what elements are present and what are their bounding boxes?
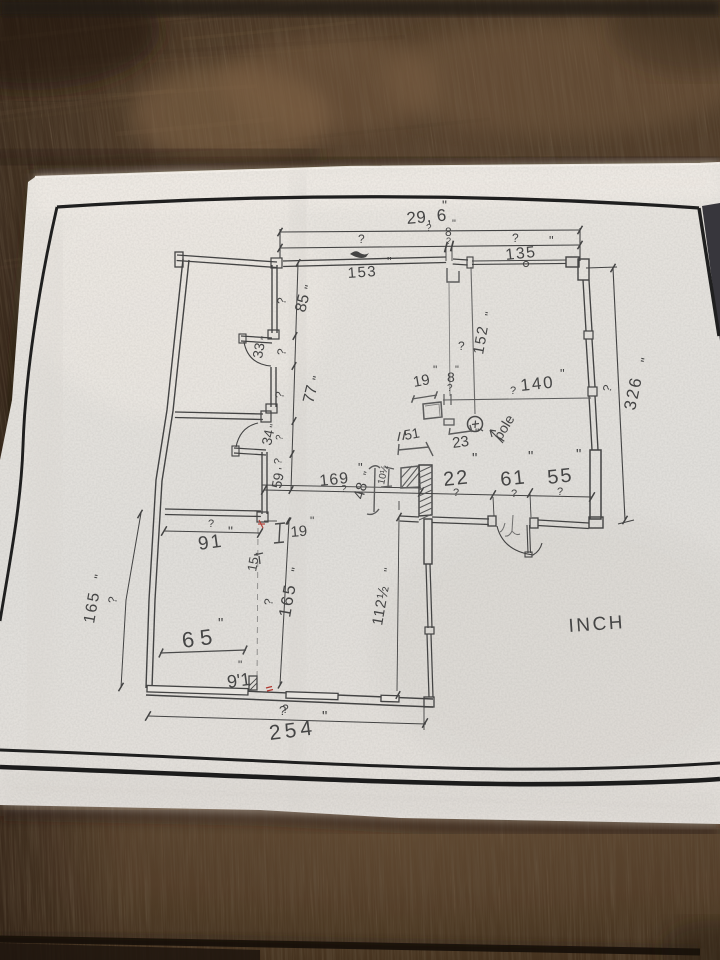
svg-text:15: 15 xyxy=(244,556,261,573)
svg-text:153: 153 xyxy=(347,263,378,282)
svg-text:?: ? xyxy=(511,488,517,500)
svg-text:?: ? xyxy=(447,383,453,394)
svg-text:INCH: INCH xyxy=(568,612,626,637)
svg-text:": " xyxy=(238,658,242,672)
svg-text:": " xyxy=(218,615,223,632)
svg-text:": " xyxy=(442,197,447,213)
svg-text:?: ? xyxy=(557,486,563,498)
svg-text:": " xyxy=(452,218,456,230)
svg-text:19: 19 xyxy=(412,371,431,391)
svg-text:": " xyxy=(455,364,459,376)
svg-text:?: ? xyxy=(282,702,289,716)
svg-text:51: 51 xyxy=(403,424,421,442)
svg-text:": " xyxy=(387,254,392,269)
svg-text:": " xyxy=(472,450,477,467)
svg-text:?: ? xyxy=(510,385,516,397)
svg-text:": " xyxy=(475,426,479,440)
svg-text:?: ? xyxy=(458,339,465,353)
svg-text:": " xyxy=(433,363,437,377)
svg-text:59: 59 xyxy=(268,471,286,489)
svg-text:?: ? xyxy=(446,236,451,246)
svg-text:91: 91 xyxy=(197,531,225,555)
svg-text:?: ? xyxy=(512,231,519,245)
svg-text:23: 23 xyxy=(451,433,470,452)
svg-text:?: ? xyxy=(208,518,214,530)
svg-text:140: 140 xyxy=(519,372,555,394)
svg-text:": " xyxy=(576,446,581,463)
svg-text:?: ? xyxy=(358,232,365,246)
svg-text:?: ? xyxy=(453,487,459,499)
svg-text:?: ? xyxy=(341,484,347,495)
svg-text:": " xyxy=(322,708,327,725)
svg-text:": " xyxy=(560,366,565,381)
svg-text:?: ? xyxy=(426,223,432,234)
svg-text:": " xyxy=(528,448,533,465)
svg-text:": " xyxy=(310,514,314,528)
svg-text:": " xyxy=(228,523,233,539)
svg-text:": " xyxy=(549,233,554,248)
svg-text:65: 65 xyxy=(180,623,220,653)
svg-text:33: 33 xyxy=(249,341,267,359)
svg-text:19: 19 xyxy=(290,523,308,541)
